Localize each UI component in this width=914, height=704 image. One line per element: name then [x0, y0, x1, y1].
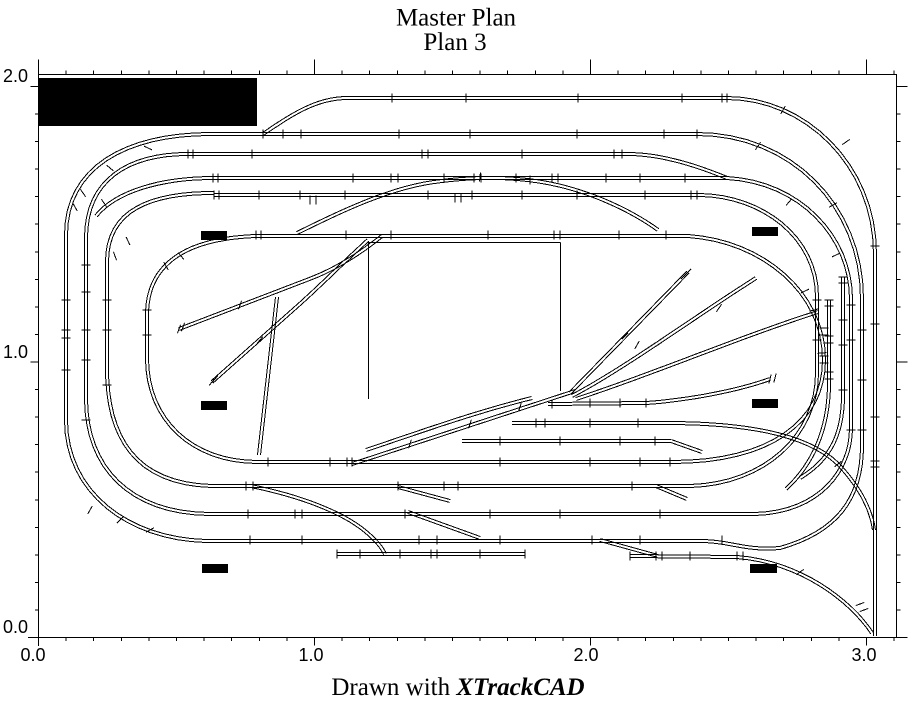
- svg-text:Plan 3: Plan 3: [423, 29, 486, 56]
- svg-text:3.0: 3.0: [851, 645, 876, 665]
- svg-text:1.0: 1.0: [298, 645, 323, 665]
- svg-text:2.0: 2.0: [573, 645, 598, 665]
- svg-text:1.0: 1.0: [3, 342, 28, 362]
- svg-text:Master Plan: Master Plan: [396, 5, 517, 32]
- svg-text:2.0: 2.0: [3, 66, 28, 86]
- svg-text:0.0: 0.0: [3, 617, 28, 637]
- svg-text:0.0: 0.0: [20, 645, 45, 665]
- svg-text:Drawn with XTrackCAD: Drawn with XTrackCAD: [331, 674, 584, 701]
